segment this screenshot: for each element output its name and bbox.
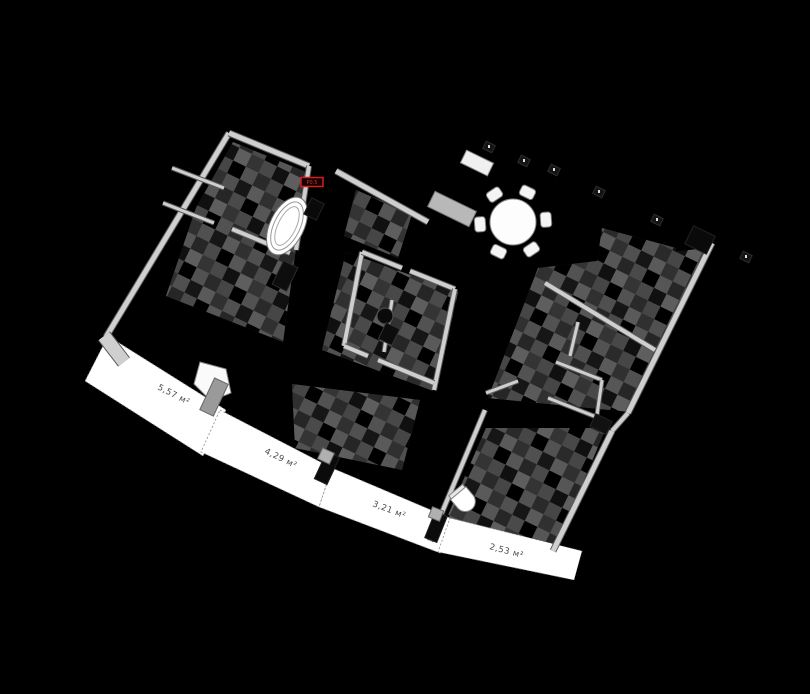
room-sofa-texture xyxy=(292,384,420,470)
round-sink xyxy=(377,308,393,324)
chair xyxy=(518,184,536,200)
small-object-highlight xyxy=(553,168,555,171)
small-object-highlight xyxy=(523,159,525,162)
small-object xyxy=(548,164,560,176)
chair xyxy=(522,241,541,259)
small-object xyxy=(483,141,495,153)
small-object xyxy=(518,155,530,167)
chair xyxy=(489,243,507,259)
chair xyxy=(540,212,552,228)
room-top-middle-texture xyxy=(344,190,412,258)
unit-badge: P0.5 xyxy=(301,178,323,187)
unit-badge-text: P0.5 xyxy=(307,180,318,186)
kitchen-island xyxy=(428,191,477,226)
small-object-highlight xyxy=(745,255,747,258)
table-top xyxy=(490,199,536,245)
kitchen-counter xyxy=(460,150,493,176)
small-object xyxy=(651,214,663,226)
small-object xyxy=(740,251,752,263)
small-object-highlight xyxy=(488,145,490,148)
chair xyxy=(485,186,504,204)
round-sink xyxy=(377,308,393,324)
balcony-strip xyxy=(85,336,226,456)
small-object-highlight xyxy=(656,218,658,221)
small-object xyxy=(593,186,605,198)
floor-plan: 5,57 м²4,29 м²3,21 м²2,53 м² P0.5 xyxy=(0,0,810,694)
floorplan-canvas: 5,57 м²4,29 м²3,21 м²2,53 м² P0.5 xyxy=(0,0,810,694)
small-object-highlight xyxy=(598,190,600,193)
wall xyxy=(612,413,628,431)
kitchen-island xyxy=(428,191,477,226)
kitchen-counter xyxy=(460,150,493,176)
chair xyxy=(474,216,486,232)
dining-table xyxy=(474,184,552,260)
